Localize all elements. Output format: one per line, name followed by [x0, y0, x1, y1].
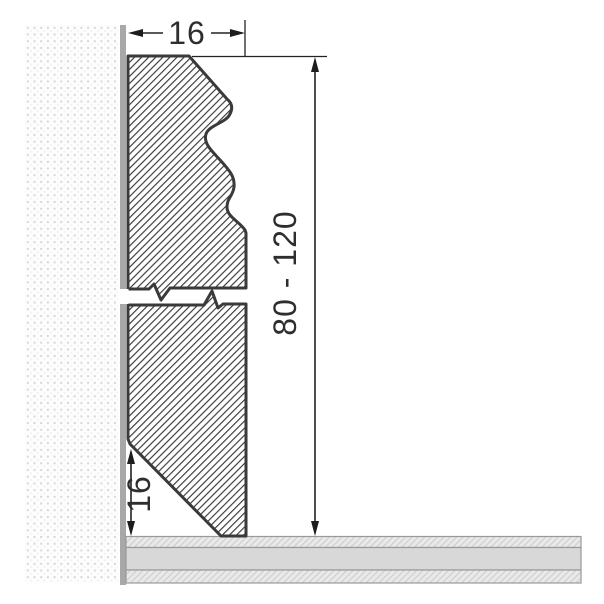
arrowhead-down-icon — [311, 521, 319, 536]
dimension-label-top-width: 16 — [168, 15, 206, 51]
arrowhead-down-icon — [127, 521, 135, 536]
dimension-label-bottom-height: 16 — [121, 475, 157, 513]
arrowhead-up-icon — [311, 57, 319, 72]
skirting-profile-upper — [128, 56, 246, 300]
wall-section — [25, 25, 118, 583]
floor-bottom-layer — [126, 570, 581, 583]
arrowhead-right-icon — [230, 29, 245, 37]
arrowhead-up-icon — [127, 449, 135, 464]
floor-middle-layer — [126, 548, 581, 571]
dimension-top-width: 16 — [128, 15, 245, 57]
skirting-profile-drawing: 16 80 - 120 16 — [0, 0, 604, 604]
floor-top-layer — [126, 537, 581, 548]
technical-drawing-canvas: 16 80 - 120 16 — [0, 0, 604, 604]
floor-layers — [126, 537, 581, 584]
dimension-label-height-range: 80 - 120 — [267, 210, 303, 335]
arrowhead-left-icon — [128, 29, 143, 37]
break-band-gap — [119, 289, 129, 304]
